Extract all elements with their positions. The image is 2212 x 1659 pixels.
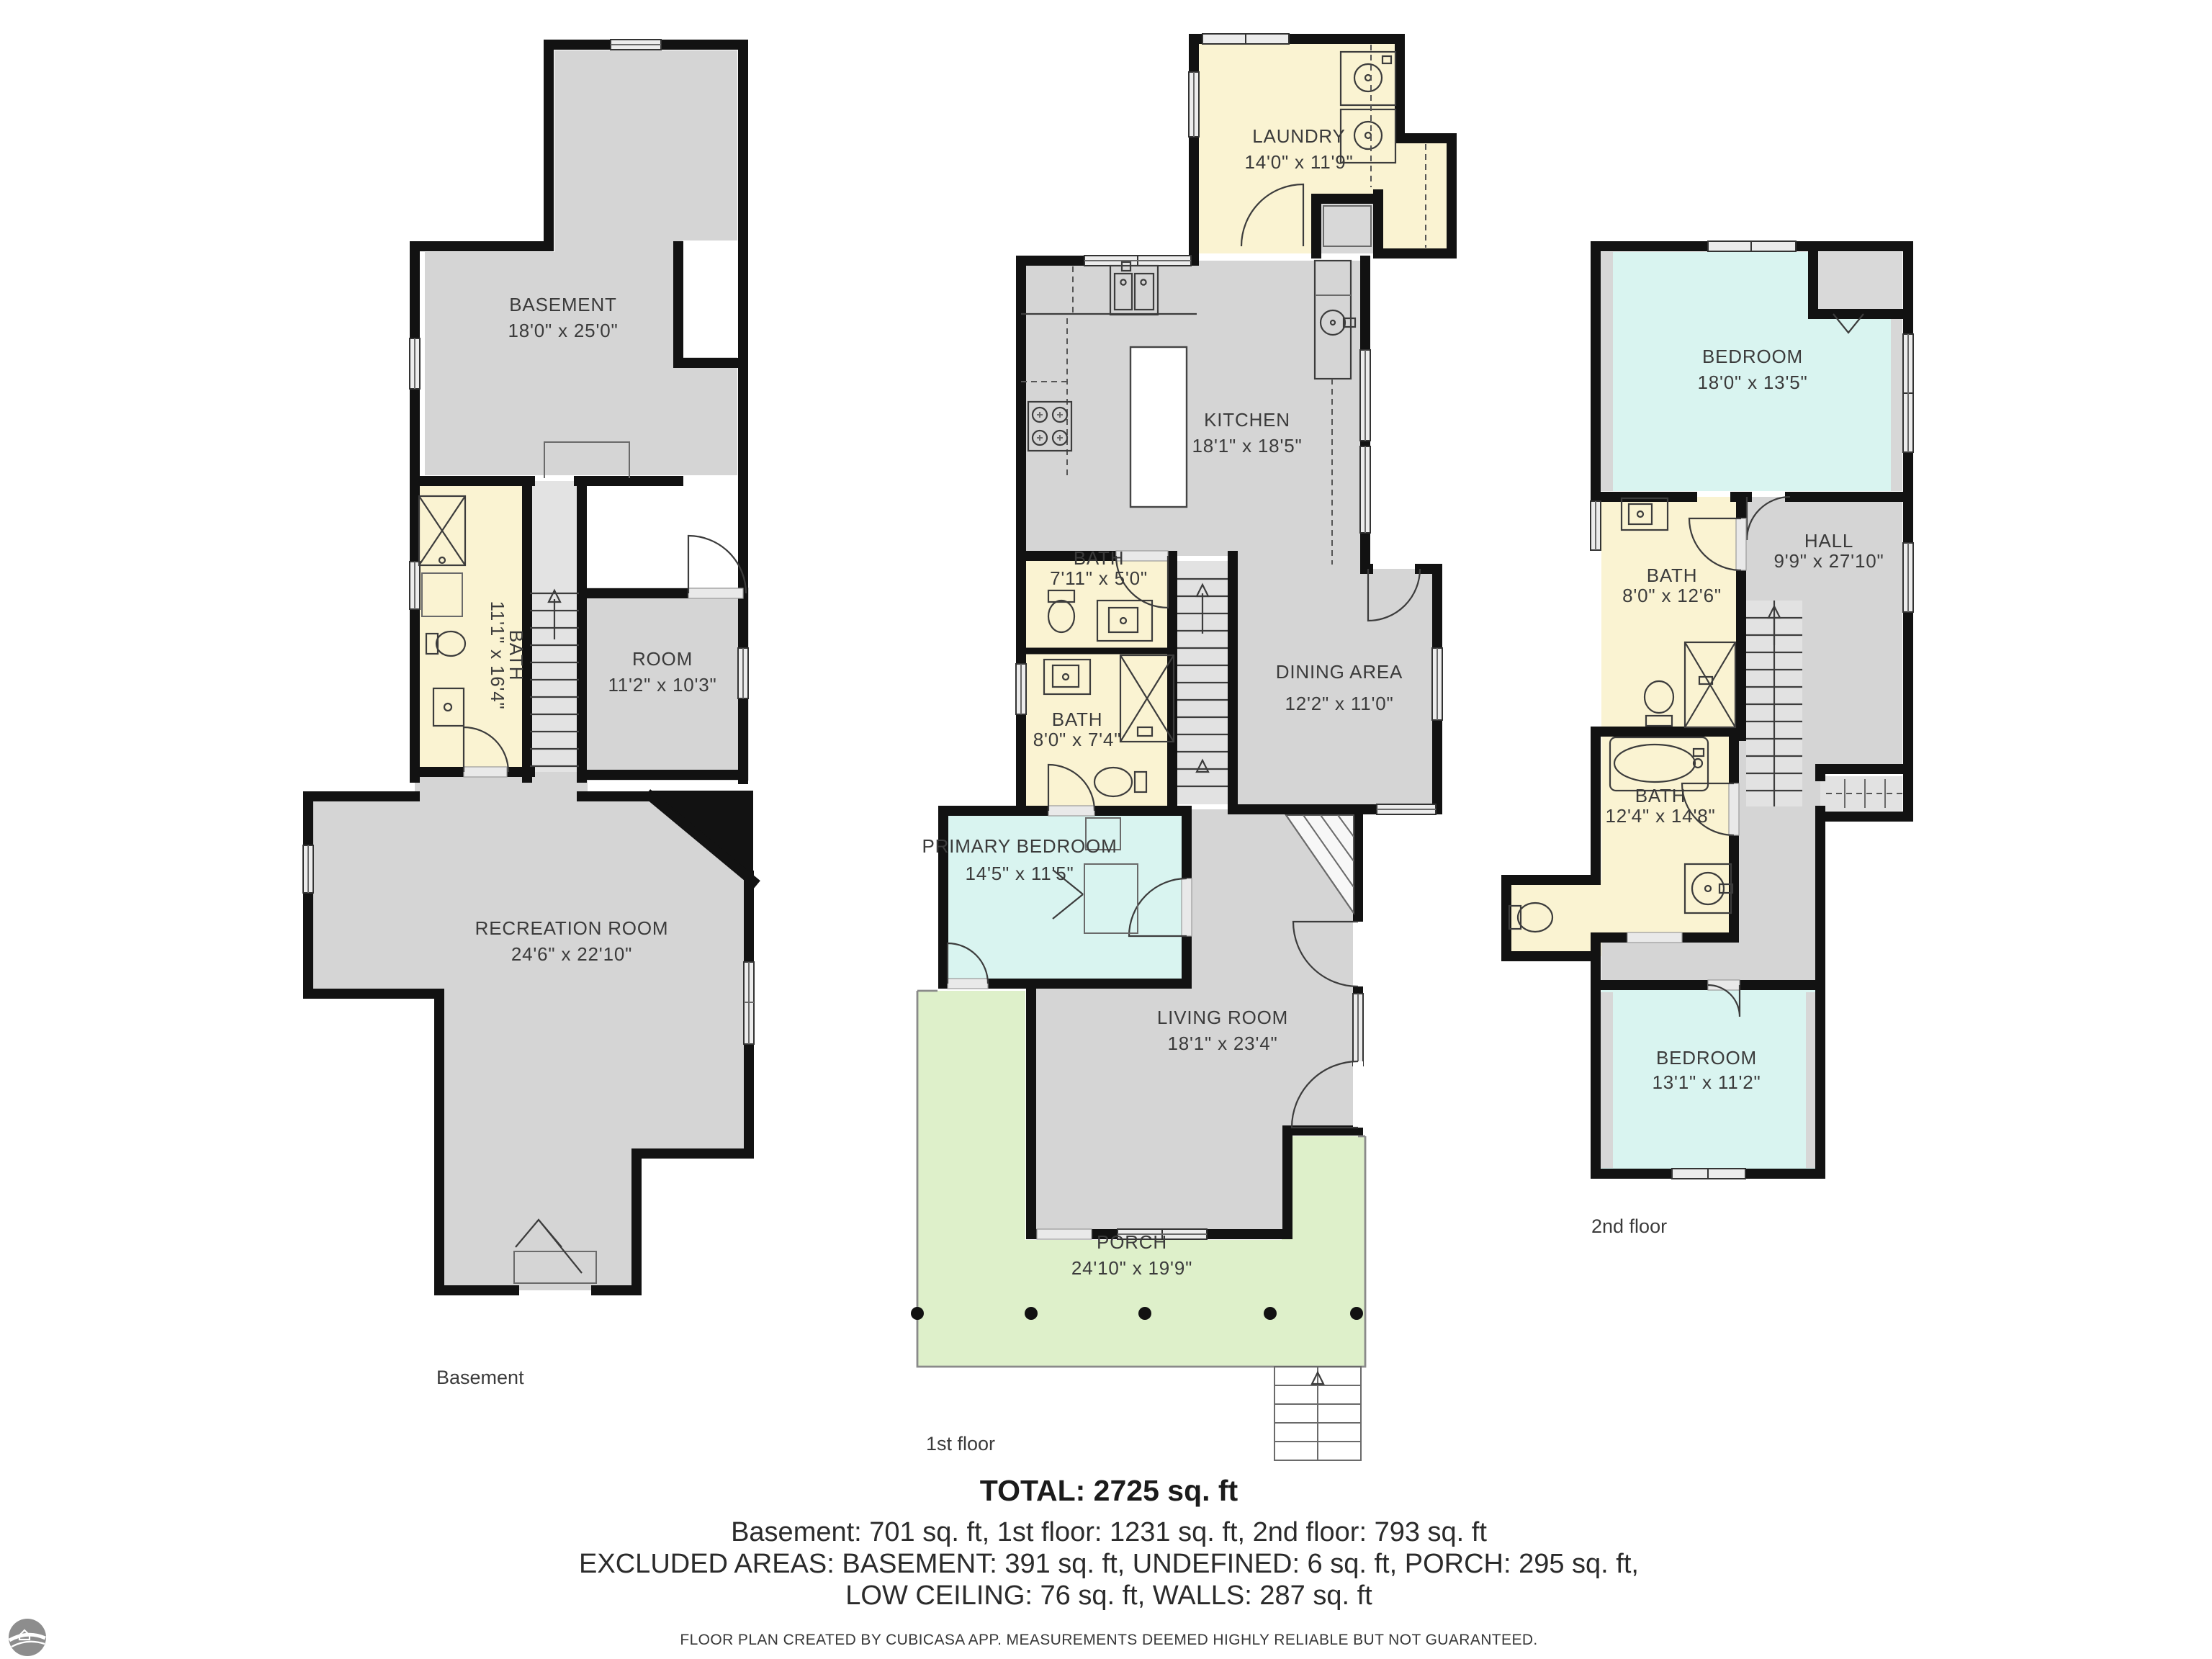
kitchen-island — [1130, 347, 1187, 507]
closet — [1817, 252, 1902, 314]
bath-upper-name: BATH — [1647, 565, 1698, 586]
laundry-name: LAUNDRY — [1252, 125, 1345, 147]
dining-name: DINING AREA — [1276, 661, 1403, 683]
window — [1202, 34, 1289, 44]
bath-name: BATH — [1052, 709, 1103, 730]
porch-post — [1350, 1307, 1363, 1320]
laundry-dims: 14'0" x 11'9" — [1244, 151, 1353, 173]
window — [744, 962, 754, 1044]
basement-plan: BASEMENT 18'0" x 25'0" BATH 11'1" x 16'4… — [303, 40, 754, 1388]
window — [1432, 648, 1442, 720]
laundry-alcove — [1316, 199, 1378, 253]
window — [1377, 804, 1436, 814]
cubicasa-logo — [9, 1619, 46, 1656]
window — [1672, 1169, 1745, 1179]
basement-room2-dims: 11'2" x 10'3" — [608, 674, 716, 696]
kitchen-dims: 18'1" x 18'5" — [1192, 435, 1303, 457]
bath-dims: 8'0" x 7'4" — [1033, 729, 1121, 750]
first-floor-caption: 1st floor — [926, 1433, 995, 1455]
window — [1353, 994, 1363, 1066]
summary-disclaimer: FLOOR PLAN CREATED BY CUBICASA APP. MEAS… — [680, 1632, 1537, 1648]
second-floor-plan: BEDROOM 18'0" x 13'5" BATH 8'0" x 12'6" … — [1506, 241, 1913, 1237]
window — [1189, 72, 1199, 137]
first-floor-plan: LAUNDRY 14'0" x 11'9" KITCHEN 18'1" x 18… — [911, 34, 1452, 1460]
primary-bedroom-name: PRIMARY BEDROOM — [922, 835, 1117, 857]
porch-post — [1264, 1307, 1277, 1320]
bath-lower-dims: 12'4" x 14'8" — [1606, 805, 1716, 827]
bedroom-small-name: BEDROOM — [1656, 1047, 1757, 1069]
window — [1903, 543, 1913, 612]
window — [1360, 446, 1370, 533]
kitchen-name: KITCHEN — [1204, 409, 1290, 431]
primary-bedroom-dims: 14'5" x 11'5" — [965, 863, 1074, 884]
basement-bath-name: BATH — [505, 630, 527, 681]
living-room-name: LIVING ROOM — [1157, 1007, 1288, 1028]
hall-dims: 9'9" x 27'10" — [1774, 550, 1884, 572]
first-floor-stairs — [1177, 561, 1228, 804]
window — [1591, 501, 1601, 550]
floorplan-image: BASEMENT 18'0" x 25'0" BATH 11'1" x 16'4… — [0, 0, 2212, 1659]
basement-caption: Basement — [436, 1367, 524, 1388]
summary-floors-line: Basement: 701 sq. ft, 1st floor: 1231 sq… — [731, 1517, 1487, 1547]
window — [738, 648, 748, 698]
porch-door — [1037, 1229, 1092, 1239]
summary-excluded-line2: LOW CEILING: 76 sq. ft, WALLS: 287 sq. f… — [845, 1581, 1372, 1611]
porch-steps — [1274, 1367, 1361, 1460]
window — [1360, 350, 1370, 441]
closet-door — [1627, 932, 1682, 943]
porch-name: PORCH — [1097, 1231, 1167, 1253]
porch-post — [1025, 1307, 1038, 1320]
window — [410, 338, 420, 389]
bedroom-small-dims: 13'1" x 11'2" — [1652, 1071, 1761, 1093]
porch-post — [1138, 1307, 1151, 1320]
window — [611, 40, 661, 50]
window — [410, 562, 420, 609]
porch-post — [911, 1307, 924, 1320]
summary-excluded-line1: EXCLUDED AREAS: BASEMENT: 391 sq. ft, UN… — [579, 1549, 1639, 1579]
basement-room2-name: ROOM — [632, 648, 693, 670]
living-room-dims: 18'1" x 23'4" — [1168, 1033, 1278, 1054]
window — [1903, 334, 1913, 452]
bath-small-dims: 7'11" x 5'0" — [1050, 567, 1148, 589]
summary-total: TOTAL: 2725 sq. ft — [980, 1474, 1238, 1507]
window — [303, 845, 313, 893]
basement-room-dims: 18'0" x 25'0" — [508, 320, 619, 341]
recreation-room-name: RECREATION ROOM — [475, 917, 669, 939]
bath-upper-dims: 8'0" x 12'6" — [1622, 585, 1722, 606]
basement-room-name: BASEMENT — [509, 294, 616, 315]
hall-name: HALL — [1804, 530, 1853, 552]
dining-dims: 12'2" x 11'0" — [1285, 693, 1393, 714]
second-floor-caption: 2nd floor — [1591, 1215, 1667, 1237]
bath-small-name: BATH — [1074, 547, 1125, 569]
bedroom-large-dims: 18'0" x 13'5" — [1698, 372, 1808, 393]
window — [1084, 256, 1191, 266]
window — [1708, 241, 1796, 251]
window — [1016, 664, 1026, 714]
door-arc — [688, 536, 746, 598]
summary-block: TOTAL: 2725 sq. ft Basement: 701 sq. ft,… — [579, 1474, 1639, 1648]
bath-lower-name: BATH — [1635, 785, 1686, 806]
recreation-room-dims: 24'6" x 22'10" — [511, 943, 632, 965]
porch-dims: 24'10" x 19'9" — [1071, 1257, 1192, 1279]
basement-bath-dims: 11'1" x 16'4" — [487, 601, 508, 709]
bedroom-large-name: BEDROOM — [1702, 346, 1803, 367]
